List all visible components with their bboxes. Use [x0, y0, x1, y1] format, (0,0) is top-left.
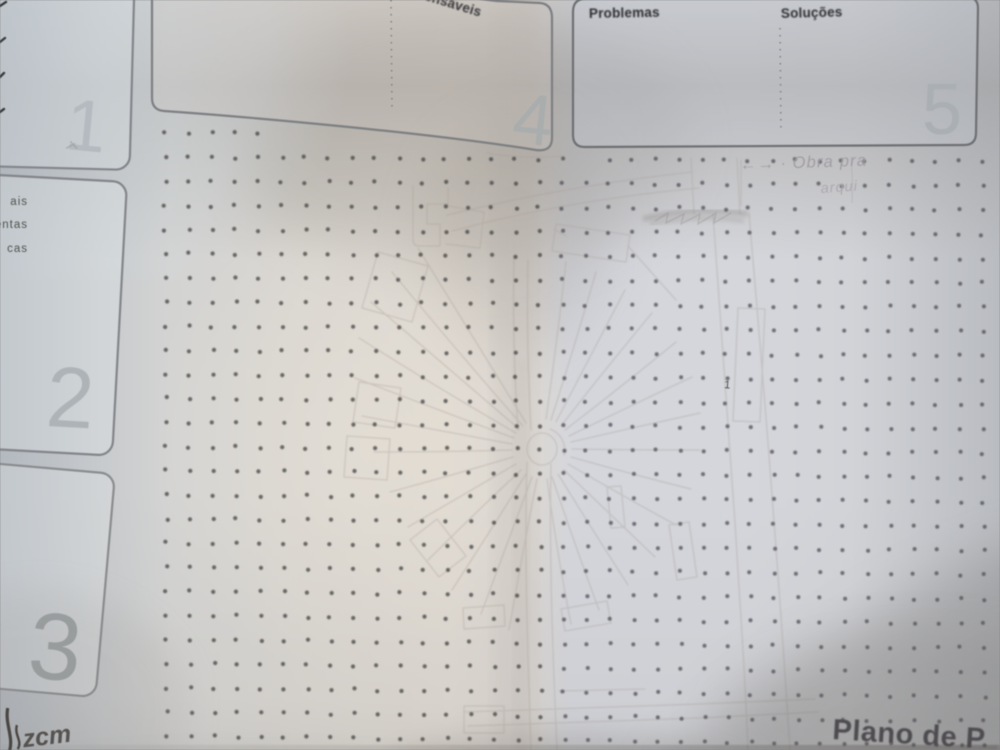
svg-text:ais: ais — [10, 196, 28, 208]
svg-text:entas: entas — [0, 219, 28, 231]
svg-text:5: 5 — [922, 70, 962, 150]
svg-text:4: 4 — [509, 78, 557, 162]
svg-text:cas: cas — [7, 243, 28, 255]
svg-text:2: 2 — [44, 349, 97, 447]
svg-text:arqui: arqui — [820, 178, 858, 197]
svg-text:Soluções: Soluções — [781, 4, 843, 21]
svg-text:Problemas: Problemas — [589, 5, 660, 21]
svg-text:1: 1 — [724, 379, 731, 391]
svg-text:1: 1 — [62, 84, 110, 169]
